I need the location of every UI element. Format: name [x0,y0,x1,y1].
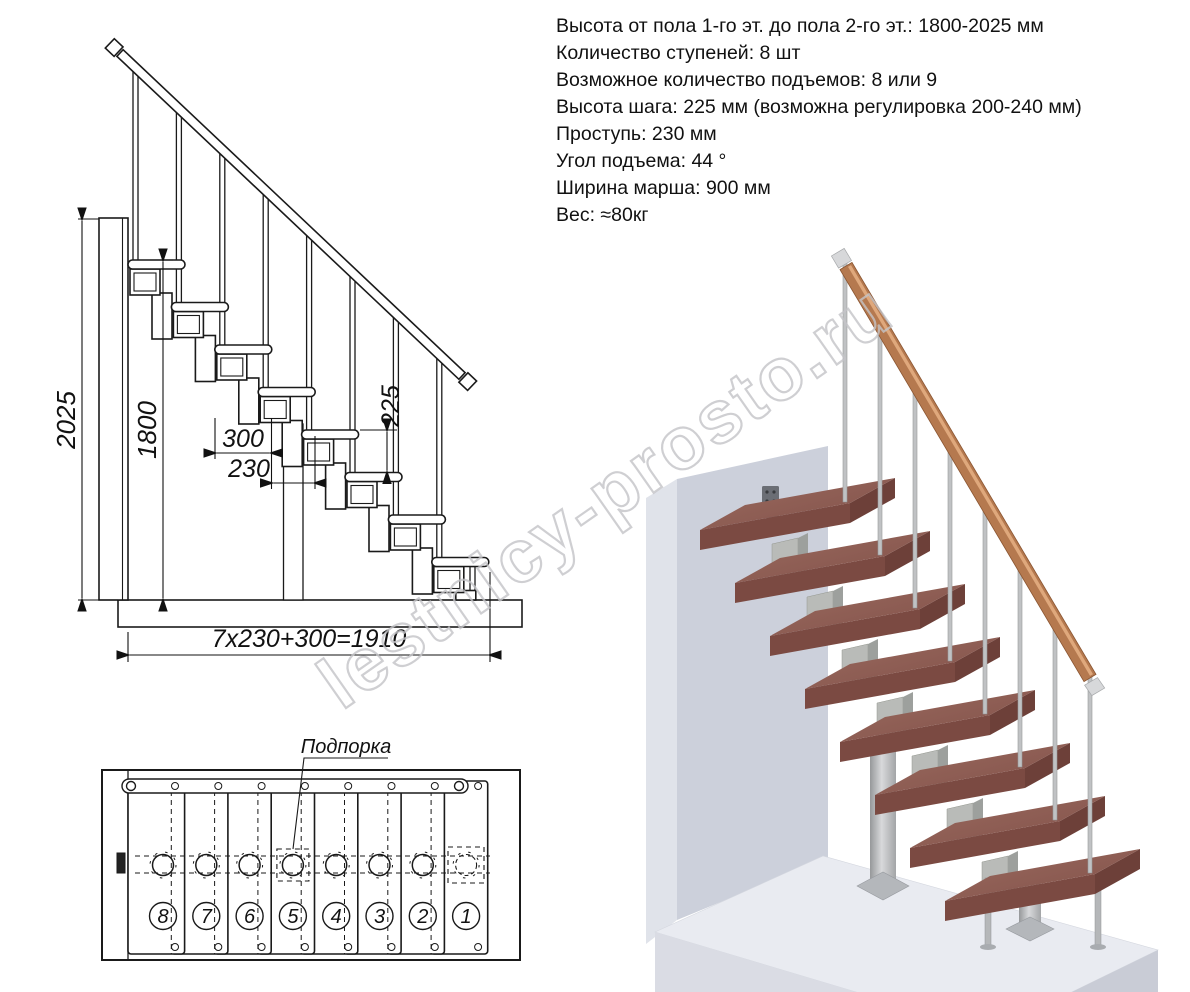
plan-step-number: 6 [244,906,256,928]
dim-label-230: 230 [227,455,270,483]
spec-line-angle: Угол подъема: 44 ° [556,148,1181,175]
wall-post [99,218,128,600]
plan-step-number: 4 [331,906,342,928]
dim-label-225: 225 [377,385,405,428]
plan-step-number: 8 [157,906,168,928]
render-step [945,849,1140,921]
dim-label-2025: 2025 [51,391,81,450]
spec-line-width: Ширина марша: 900 мм [556,175,1181,202]
support-label: Подпорка [301,736,392,758]
dim-label-1800: 1800 [132,401,162,459]
plan-step-number: 3 [374,906,385,928]
spec-line-step-height: Высота шага: 225 мм (возможна регулировк… [556,94,1181,121]
spec-line-height: Высота от пола 1-го эт. до пола 2-го эт.… [556,13,1181,40]
spec-line-rises: Возможное количество подъемов: 8 или 9 [556,67,1181,94]
plan-view-drawing [102,758,520,960]
plan-step-number: 1 [461,906,472,928]
plan-step-number: 7 [201,906,213,928]
spec-text-block: Высота от пола 1-го эт. до пола 2-го эт.… [556,13,1181,229]
handrail-cap-bottom [1085,678,1105,696]
plan-wall-plate [117,853,125,873]
dim-label-300: 300 [222,425,264,453]
spec-line-weight: Вес: ≈80кг [556,202,1181,229]
wall-side-face [646,479,677,944]
render-3d [646,248,1158,992]
plan-step-number: 5 [287,906,299,928]
spec-line-steps: Количество ступеней: 8 шт [556,40,1181,67]
plan-step-number: 2 [416,906,428,928]
spec-line-tread: Проступь: 230 мм [556,121,1181,148]
